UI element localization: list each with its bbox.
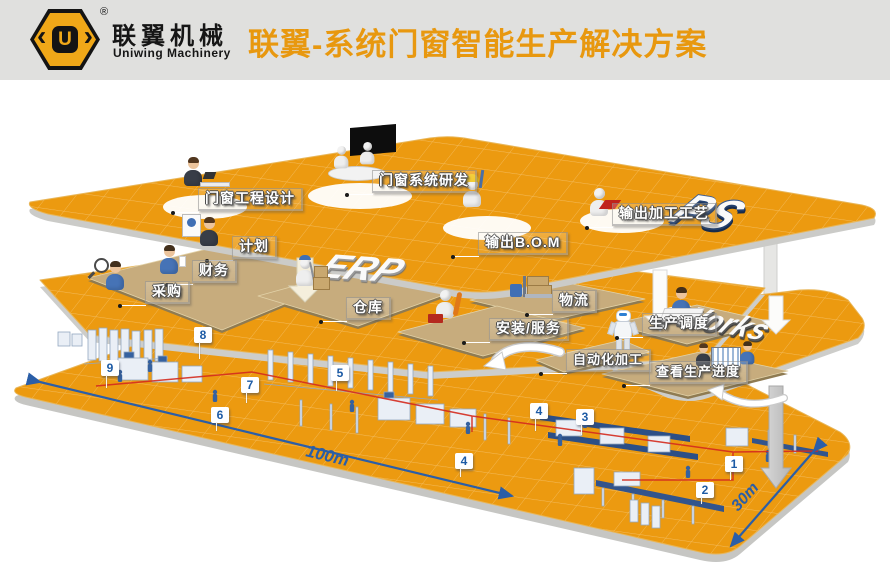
logo-chevron-left-icon: ‹ [37, 22, 46, 50]
infographic-poster: 100m 30m ‹ › U [0, 0, 890, 567]
badge-number: 7 [247, 378, 254, 392]
label-finance: 财务 [192, 260, 237, 283]
label-logistics: 物流 [552, 290, 597, 313]
label-install: 安装/服务 [489, 318, 569, 341]
floor-badge: 9 [101, 360, 119, 376]
badge-number: 9 [107, 361, 114, 375]
forklift-icon [510, 284, 522, 297]
label-craft: 输出加工工艺 [612, 203, 717, 226]
badge-number: 1 [731, 457, 738, 471]
magnifier-icon [94, 258, 109, 273]
company-name-en: Uniwing Machinery [113, 46, 231, 60]
chart-easel-icon [182, 214, 201, 237]
pallet-icon [525, 294, 552, 298]
label-auto-processing: 自动化加工 [566, 349, 651, 372]
label-plan: 计划 [232, 236, 277, 259]
floor-badge: 2 [696, 482, 714, 498]
badge-number: 2 [702, 483, 709, 497]
label-warehouse: 仓库 [346, 297, 391, 320]
floor-badge: 4 [530, 403, 548, 419]
poster-title: 联翼-系统门窗智能生产解决方案 [248, 19, 707, 64]
carton-box-icon [313, 277, 330, 290]
machinery-back-left [58, 332, 82, 346]
label-rnd: 门窗系统研发 [372, 170, 477, 193]
badge-number: 6 [217, 408, 224, 422]
isometric-scene: 100m 30m [0, 0, 890, 567]
badge-number: 5 [337, 366, 344, 380]
floor-badge: 8 [194, 327, 212, 343]
registered-trademark: ® [100, 6, 108, 18]
label-bom: 输出B.O.M [478, 232, 568, 255]
label-purchase: 采购 [145, 281, 190, 304]
badge-number: 8 [200, 328, 207, 342]
meeting-figure [334, 146, 348, 168]
logo-chevron-right-icon: › [84, 22, 93, 50]
badge-number: 4 [461, 454, 468, 468]
label-scheduling: 生产调度 [642, 313, 717, 336]
header-bar: ‹ › U ® 联翼机械 Uniwing Machinery 联翼-系统门窗智能… [0, 0, 890, 80]
cap-icon [299, 255, 311, 260]
finance-figure [160, 246, 178, 274]
floor-badge: 6 [211, 407, 229, 423]
logo-letter: U [52, 26, 78, 53]
badge-number: 3 [582, 410, 589, 424]
label-view-progress: 查看生产进度 [649, 361, 748, 384]
floor-badge: 4 [455, 453, 473, 469]
glass-icon [179, 256, 186, 267]
planner-figure [200, 218, 218, 246]
label-engineering: 门窗工程设计 [198, 188, 303, 211]
floor-badge: 1 [725, 456, 743, 472]
robot-visor-icon [619, 313, 627, 316]
company-logo: ‹ › U [30, 9, 100, 70]
desk-icon [200, 182, 230, 187]
floor-badge: 5 [331, 365, 349, 381]
floor-badge: 3 [576, 409, 594, 425]
floor-badge: 7 [241, 377, 259, 393]
badge-number: 4 [536, 404, 543, 418]
meeting-figure [360, 142, 374, 164]
toolbox-icon [428, 314, 443, 323]
